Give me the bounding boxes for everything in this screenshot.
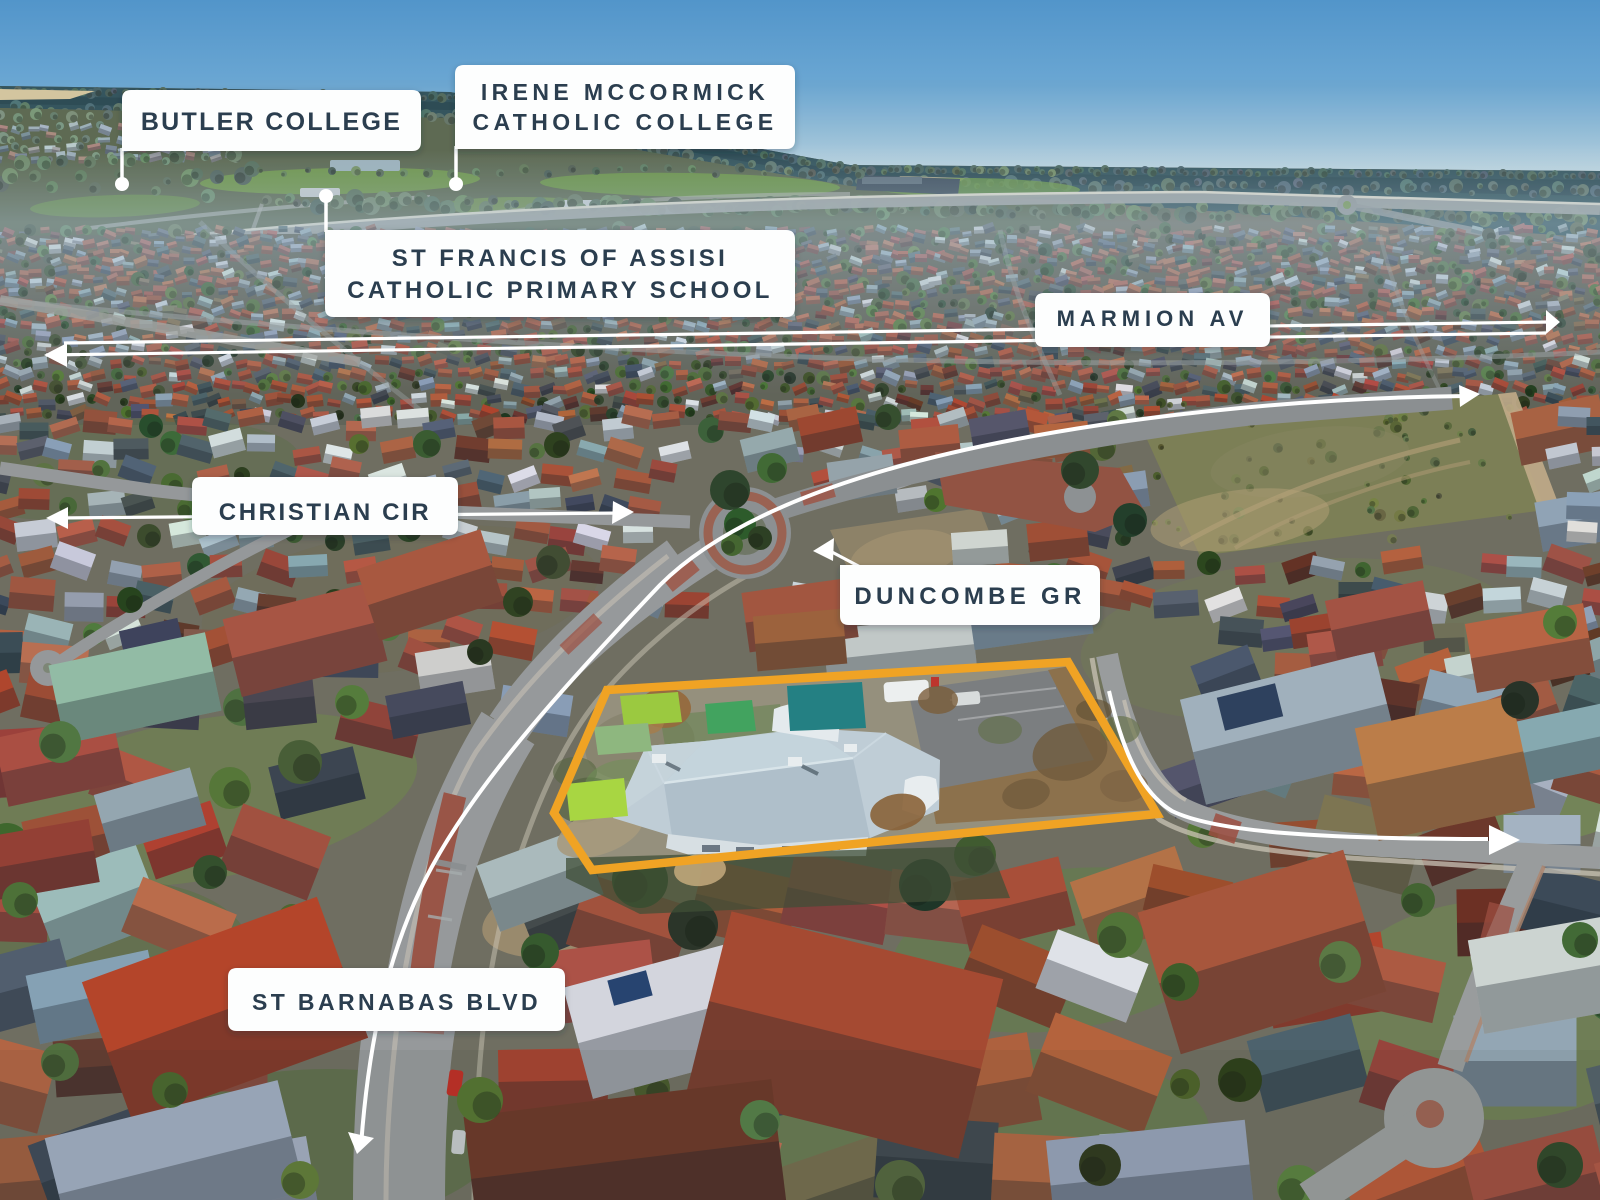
svg-text:BUTLER COLLEGE: BUTLER COLLEGE	[141, 108, 402, 136]
svg-text:CATHOLIC COLLEGE: CATHOLIC COLLEGE	[472, 109, 777, 135]
svg-text:MARMION AV: MARMION AV	[1057, 306, 1249, 331]
svg-text:ST BARNABAS BLVD: ST BARNABAS BLVD	[252, 989, 541, 1015]
svg-text:ST FRANCIS OF ASSISI: ST FRANCIS OF ASSISI	[392, 245, 728, 272]
svg-text:CHRISTIAN CIR: CHRISTIAN CIR	[219, 499, 431, 526]
svg-text:IRENE MCCORMICK: IRENE MCCORMICK	[481, 79, 769, 105]
svg-text:CATHOLIC PRIMARY SCHOOL: CATHOLIC PRIMARY SCHOOL	[347, 277, 773, 304]
svg-text:DUNCOMBE GR: DUNCOMBE GR	[854, 583, 1085, 610]
